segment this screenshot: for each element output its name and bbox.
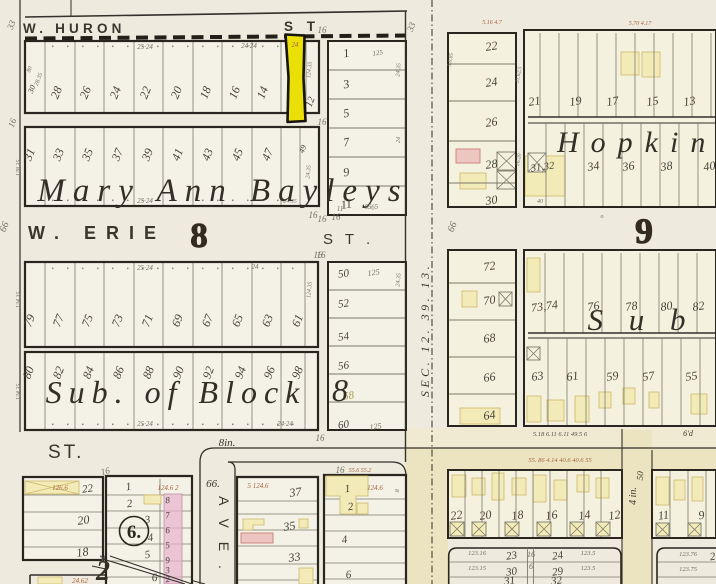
- svg-text:55.6 55.2: 55.6 55.2: [349, 468, 372, 474]
- svg-text:21: 21: [528, 93, 542, 109]
- svg-text:25·24: 25·24: [137, 43, 153, 51]
- svg-text:35: 35: [282, 518, 297, 534]
- svg-text:63: 63: [531, 368, 545, 384]
- svg-text:123.75: 123.75: [679, 566, 698, 573]
- svg-text:8: 8: [332, 372, 348, 408]
- svg-text:16: 16: [318, 25, 328, 35]
- svg-text:Hopkins: Hopkins: [556, 126, 716, 159]
- svg-text:Mary Ann Bayleys: Mary Ann Bayleys: [36, 173, 408, 209]
- svg-text:128.35: 128.35: [16, 160, 23, 177]
- svg-text:11: 11: [337, 205, 343, 213]
- svg-text:123.5: 123.5: [581, 565, 596, 572]
- svg-text:19: 19: [569, 93, 583, 109]
- svg-text:22: 22: [81, 482, 94, 495]
- svg-text:9: 9: [635, 211, 653, 251]
- svg-text:22: 22: [485, 38, 499, 54]
- svg-text:55: 55: [685, 368, 699, 384]
- svg-text:16: 16: [317, 250, 327, 260]
- svg-text:8in.: 8in.: [219, 437, 236, 449]
- svg-text:125: 125: [367, 267, 380, 278]
- svg-text:A V E .: A V E .: [216, 496, 232, 574]
- svg-text:124.35: 124.35: [305, 61, 313, 78]
- svg-text:32: 32: [549, 574, 563, 584]
- svg-text:55. 86 4.14 40.6 40.6 5: 55. 86 4.14 40.6 40.6 55: [528, 457, 592, 464]
- svg-text:31: 31: [502, 574, 516, 584]
- svg-text:72: 72: [483, 258, 497, 274]
- svg-text:S T .: S T .: [323, 231, 374, 248]
- svg-text:66: 66: [483, 369, 497, 385]
- svg-text:50: 50: [337, 267, 350, 280]
- svg-text:14: 14: [578, 507, 592, 523]
- svg-text:16: 16: [545, 507, 559, 523]
- svg-text:18: 18: [511, 507, 525, 523]
- svg-text:23: 23: [505, 549, 518, 562]
- svg-text:S T: S T: [284, 19, 320, 34]
- svg-text:123.15: 123.15: [468, 565, 487, 572]
- svg-text:16: 16: [332, 212, 342, 222]
- svg-text:124.35: 124.35: [15, 384, 23, 401]
- svg-text:4 in.: 4 in.: [628, 487, 639, 505]
- svg-text:S u b: S u b: [588, 302, 695, 337]
- svg-text:5 124.6: 5 124.6: [248, 482, 270, 490]
- svg-text:6: 6: [529, 562, 533, 571]
- svg-text:64: 64: [483, 407, 497, 423]
- svg-text:123.16: 123.16: [468, 550, 487, 557]
- svg-text:12: 12: [608, 507, 622, 523]
- svg-text:15: 15: [646, 93, 660, 109]
- svg-text:28: 28: [485, 156, 499, 172]
- svg-text:123.5: 123.5: [581, 550, 596, 557]
- svg-text:26: 26: [485, 114, 499, 130]
- svg-text:o: o: [601, 214, 604, 220]
- svg-text:Sub. of Block: Sub. of Block: [46, 374, 307, 410]
- svg-text:60: 60: [337, 418, 350, 431]
- svg-text:5.16 4.7: 5.16 4.7: [482, 19, 503, 26]
- svg-text:56: 56: [337, 359, 350, 372]
- svg-text:54: 54: [337, 330, 350, 343]
- svg-text:W. HURON: W. HURON: [23, 21, 126, 36]
- svg-text:66.: 66.: [206, 478, 220, 490]
- svg-text:52: 52: [337, 297, 350, 310]
- svg-text:16: 16: [318, 214, 328, 224]
- svg-text:20: 20: [77, 512, 91, 528]
- svg-text:24: 24: [395, 137, 402, 144]
- svg-text:123.76: 123.76: [679, 551, 698, 558]
- svg-text:24.35: 24.35: [394, 63, 402, 77]
- svg-text:65: 65: [365, 203, 373, 211]
- svg-text:16: 16: [527, 550, 535, 559]
- svg-text:25·24: 25·24: [137, 264, 153, 272]
- svg-text:40: 40: [703, 158, 716, 174]
- svg-text:2: 2: [95, 556, 110, 584]
- svg-text:124.6 2: 124.6 2: [158, 484, 180, 492]
- svg-text:24: 24: [485, 74, 499, 90]
- svg-text:38: 38: [659, 158, 674, 174]
- svg-text:124.35: 124.35: [15, 292, 23, 309]
- svg-text:50: 50: [635, 470, 646, 480]
- svg-text:30: 30: [484, 192, 499, 208]
- svg-text:8: 8: [190, 216, 208, 255]
- svg-text:25·24: 25·24: [137, 420, 153, 428]
- svg-text:24.62: 24.62: [72, 577, 88, 584]
- svg-text:22: 22: [450, 507, 464, 523]
- svg-text:36: 36: [621, 158, 636, 174]
- svg-text:16: 16: [316, 433, 326, 443]
- svg-text:124.35: 124.35: [305, 281, 313, 298]
- svg-text:40: 40: [537, 198, 543, 205]
- svg-text:8: 8: [395, 489, 401, 493]
- svg-text:24: 24: [551, 549, 564, 562]
- svg-text:W. ERIE: W. ERIE: [28, 223, 166, 243]
- svg-text:SEC. 12. 39. 13.: SEC. 12. 39. 13.: [418, 263, 432, 397]
- svg-text:125: 125: [369, 421, 382, 432]
- svg-text:68: 68: [483, 330, 497, 346]
- svg-text:24: 24: [292, 41, 300, 49]
- svg-text:34: 34: [586, 158, 601, 174]
- svg-text:24: 24: [252, 263, 260, 271]
- svg-text:18: 18: [76, 544, 90, 560]
- svg-text:33: 33: [287, 549, 302, 565]
- svg-text:ST.: ST.: [48, 442, 84, 463]
- svg-text:24·24: 24·24: [241, 42, 257, 50]
- svg-text:5.70 4.17: 5.70 4.17: [629, 20, 653, 27]
- svg-text:125: 125: [372, 48, 384, 57]
- svg-text:70: 70: [483, 292, 497, 308]
- svg-text:126.6: 126.6: [52, 484, 68, 492]
- svg-text:16: 16: [336, 465, 346, 475]
- svg-text:24·24: 24·24: [277, 420, 293, 428]
- svg-text:16: 16: [318, 117, 328, 127]
- svg-text:16: 16: [309, 210, 319, 220]
- svg-text:11: 11: [657, 507, 670, 522]
- svg-text:6'd: 6'd: [683, 429, 694, 438]
- svg-text:13: 13: [683, 93, 697, 109]
- svg-text:24.35: 24.35: [394, 273, 402, 287]
- svg-text:61: 61: [566, 368, 580, 384]
- svg-text:124.6: 124.6: [367, 484, 383, 492]
- svg-text:5.18 6.11 6.11 49.5: 5.18 6.11 6.11 49.5 6: [533, 431, 588, 438]
- svg-text:59: 59: [606, 368, 620, 384]
- svg-text:20: 20: [479, 507, 493, 523]
- svg-text:6.: 6.: [127, 522, 141, 543]
